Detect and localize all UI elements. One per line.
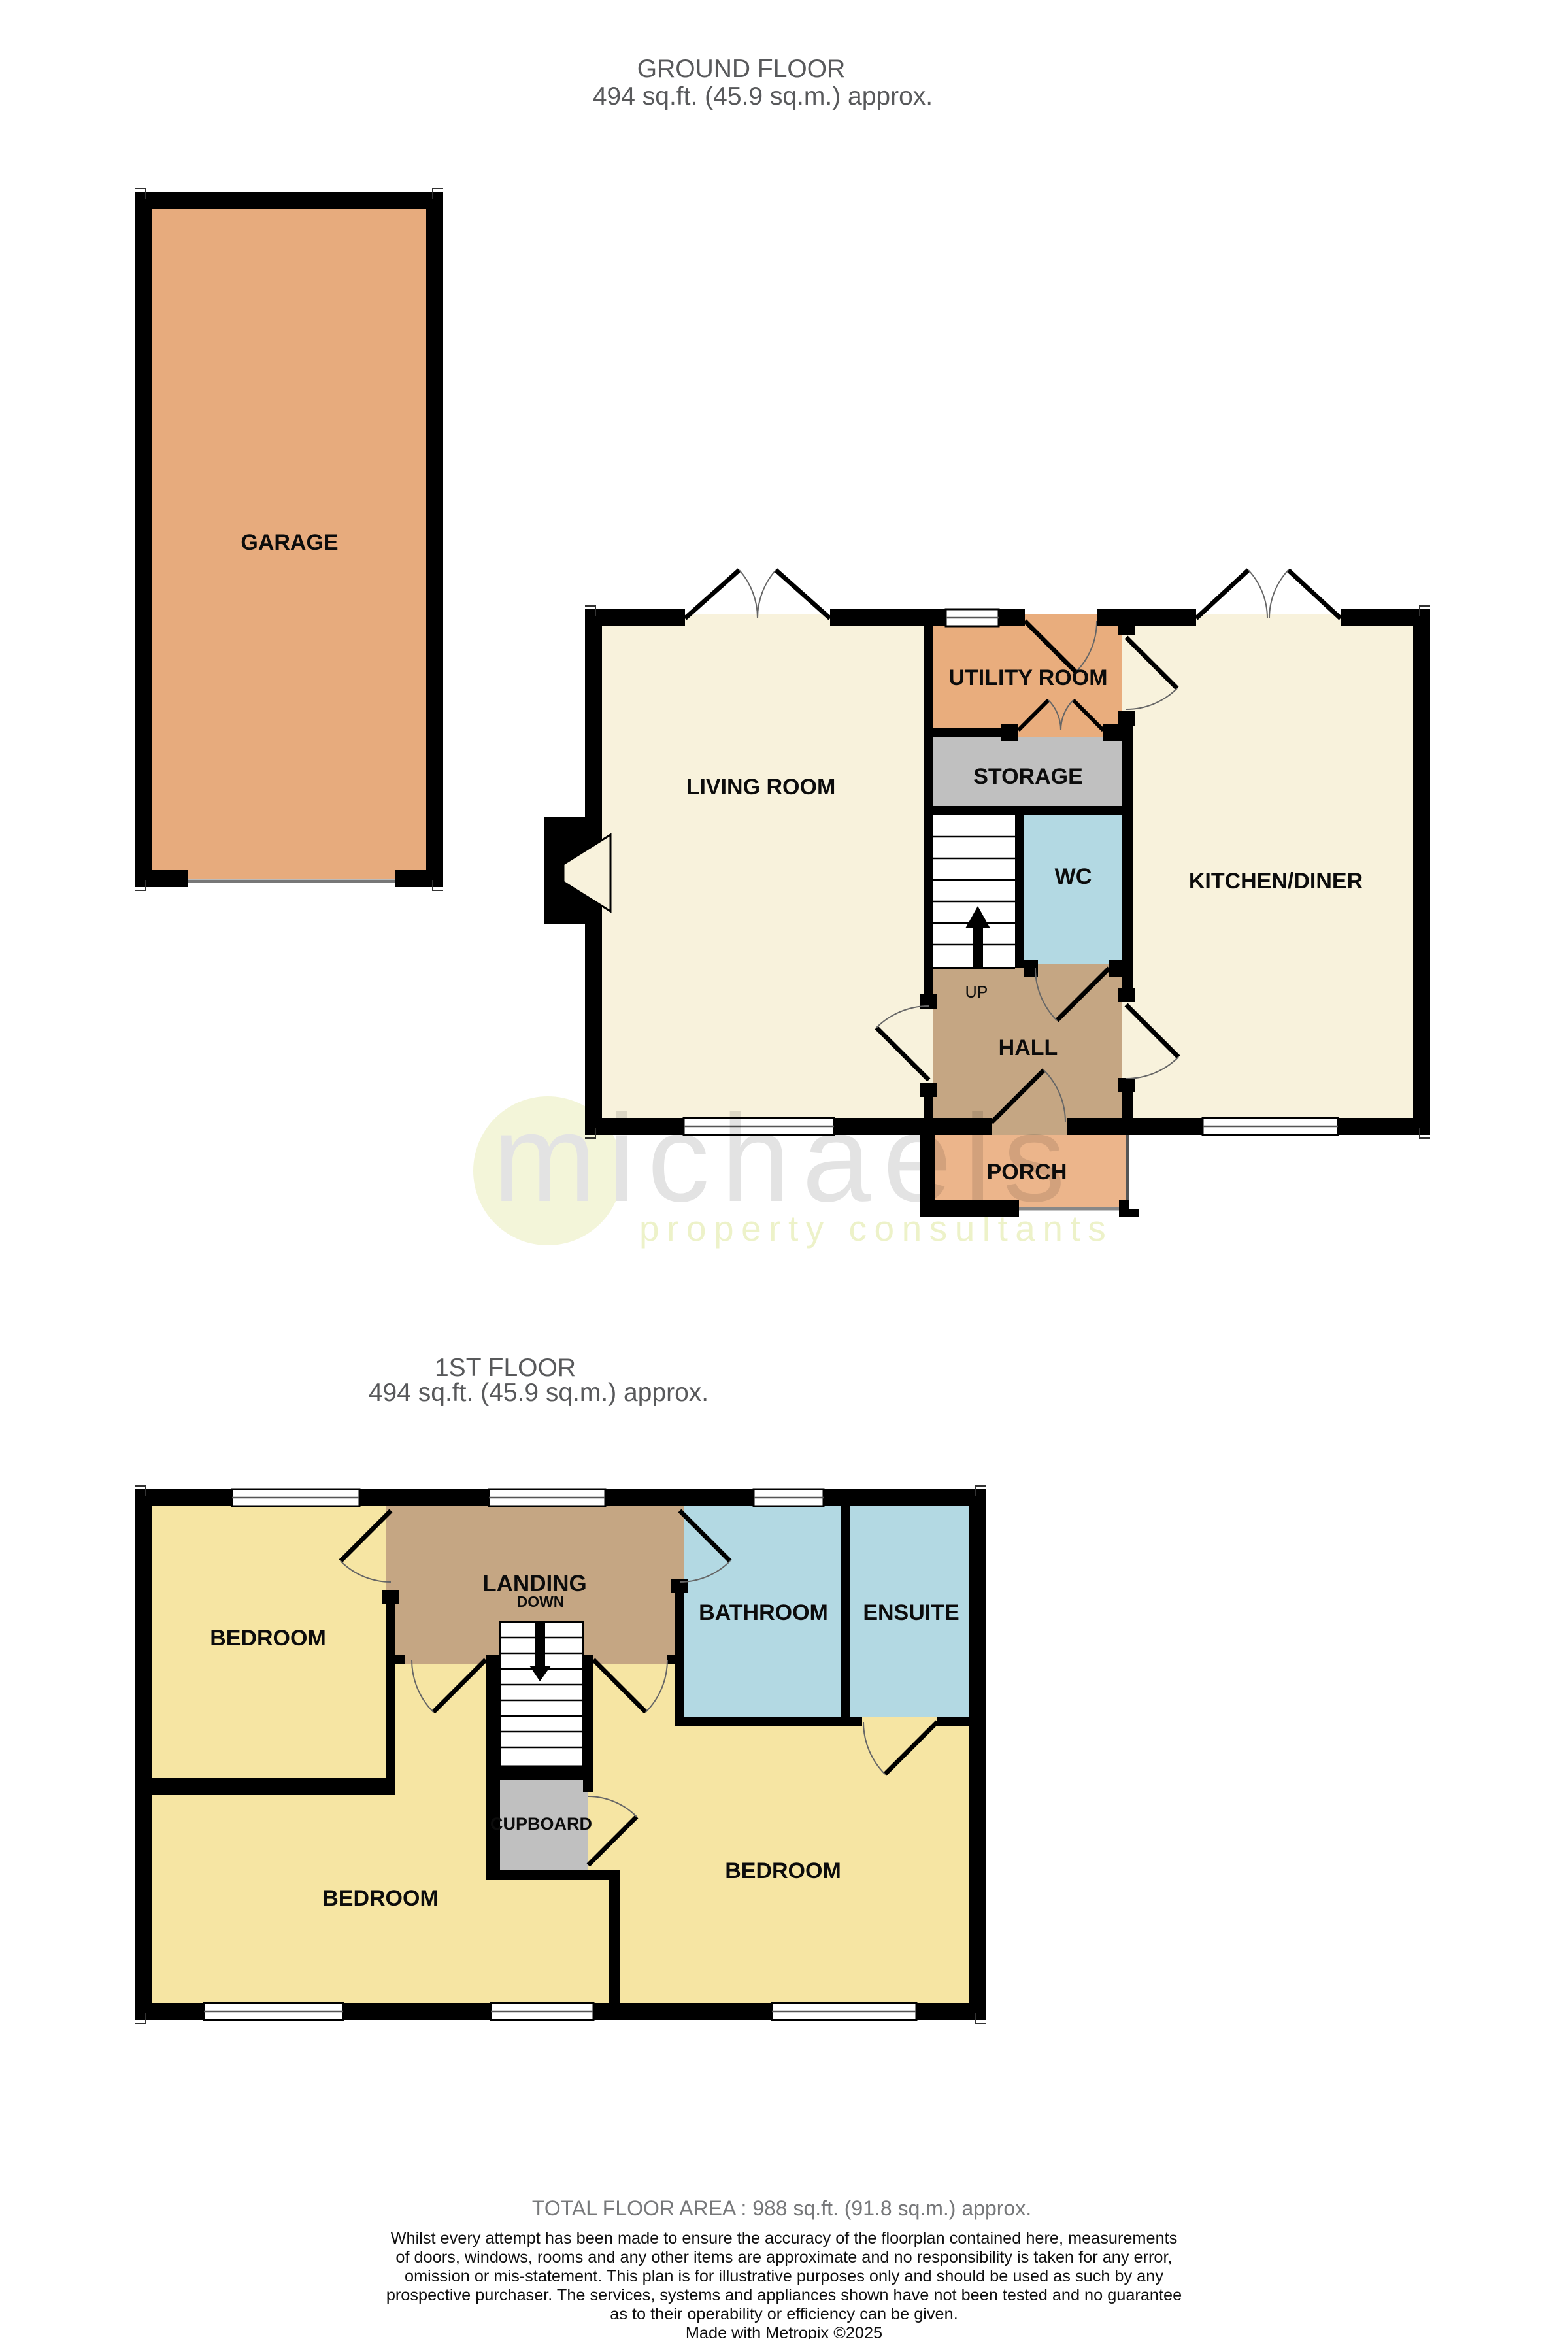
svg-text:GARAGE: GARAGE xyxy=(241,530,338,555)
svg-text:BEDROOM: BEDROOM xyxy=(210,1626,326,1651)
svg-text:BEDROOM: BEDROOM xyxy=(322,1886,439,1911)
svg-text:BATHROOM: BATHROOM xyxy=(699,1600,828,1625)
svg-text:LIVING ROOM: LIVING ROOM xyxy=(686,775,836,799)
svg-text:ENSUITE: ENSUITE xyxy=(863,1600,959,1625)
svg-text:michaels: michaels xyxy=(493,1089,1077,1228)
svg-text:STORAGE: STORAGE xyxy=(973,764,1083,789)
svg-text:BEDROOM: BEDROOM xyxy=(725,1859,841,1883)
svg-text:HALL: HALL xyxy=(999,1035,1058,1060)
svg-text:property consultants: property consultants xyxy=(639,1208,1113,1249)
svg-text:CUPBOARD: CUPBOARD xyxy=(490,1814,592,1834)
svg-text:UTILITY ROOM: UTILITY ROOM xyxy=(948,665,1107,690)
svg-text:KITCHEN/DINER: KITCHEN/DINER xyxy=(1189,869,1363,894)
svg-text:WC: WC xyxy=(1055,864,1092,889)
svg-text:UP: UP xyxy=(965,983,988,1001)
svg-text:DOWN: DOWN xyxy=(517,1593,565,1610)
